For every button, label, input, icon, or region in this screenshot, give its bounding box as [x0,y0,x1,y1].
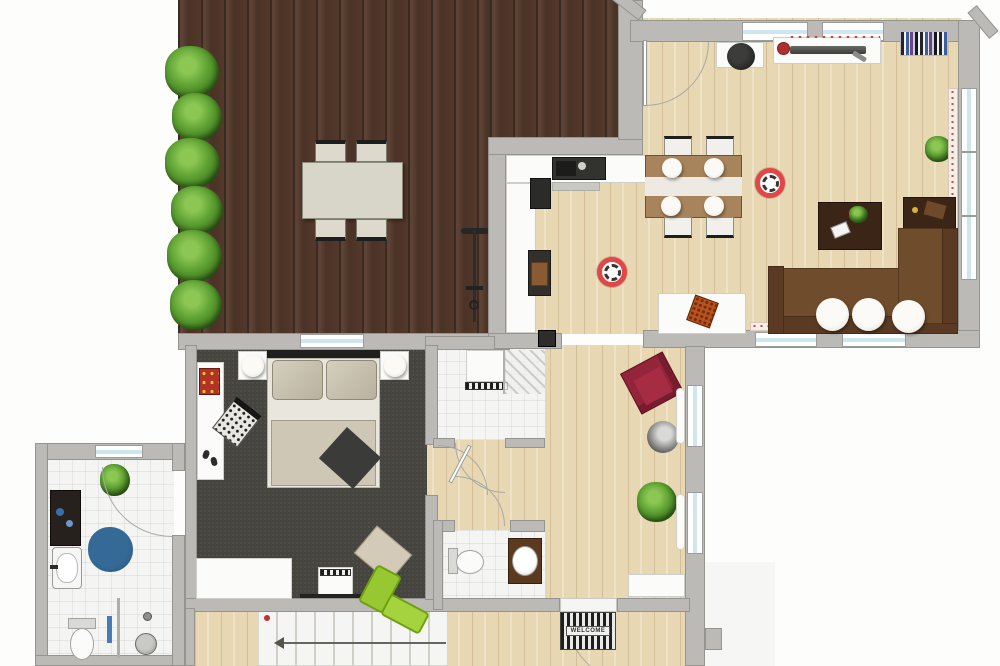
bedside-lamp [384,355,406,377]
shrub-plant [167,230,222,282]
kitchen-west-wall [488,137,506,349]
shrub-plant [171,186,223,234]
sofa-pillow [816,298,849,331]
bathroom-east-wall-lower [172,535,185,666]
welcome-mat-label: WELCOME [566,626,610,636]
living-east-window [961,88,977,152]
stairs-west-wall [185,608,195,666]
hall-plant [637,482,677,522]
bedroom-window [300,334,364,348]
curtain [676,494,685,550]
outdoor-chair [356,219,387,241]
keyboard-keys [320,569,351,576]
bedside-lamp [242,355,264,377]
black-lounge-chair [727,43,755,70]
shrub-plant [172,93,222,141]
wc-toilet-bowl [456,550,484,574]
kitchen-mat [552,182,600,191]
wash-basin-bowl [56,553,78,583]
living-south-window [755,332,817,347]
sofa-pillow [892,300,925,333]
blue-round-rug [88,527,133,572]
living-east-window [961,152,977,216]
exterior-path [705,562,775,666]
shower-room-cabinet [466,350,506,382]
bed-pillow [272,360,323,400]
wc-north-wall2 [510,520,545,532]
bedroom-east-wall-upper [425,345,438,445]
stairs-direction-line [282,642,446,644]
living-east-window [961,216,977,280]
hall-east-window [687,385,703,447]
kitchen-faucet [578,162,586,170]
camera-360-marker[interactable] [755,168,785,198]
deco-garland [788,34,880,40]
camera-360-marker[interactable] [597,257,627,287]
plate [661,196,681,216]
vanity-items [56,508,64,516]
bicycle-wheel [469,300,479,310]
plate [704,158,724,178]
shower-glass-panel [117,598,120,658]
deck-door-leaf [643,40,647,106]
outdoor-chair [315,140,346,162]
cutting-board [531,262,548,286]
shrub-plant [165,138,220,188]
shower-stool [135,633,157,655]
bathroom-west-wall [35,443,48,666]
kitchen-oven [530,178,551,209]
basin-faucet [50,565,58,569]
curtain [676,388,685,444]
bicycle-pedals [466,286,483,290]
shower-room-radiator [465,382,508,390]
sofa-armrest [768,266,784,334]
hallway-floor-strip [195,608,261,666]
camera-360-glyph [762,175,779,192]
living-south-window [842,332,906,347]
bookshelf [900,31,948,56]
stairs-arrow-icon [274,637,284,649]
stairs-start-marker [264,615,270,621]
shower-glass [503,350,545,394]
red-storage-box [199,368,220,395]
kitchen-south-appliance [538,330,556,347]
sofa-pillow [852,298,885,331]
plate [662,158,682,178]
outdoor-table [302,162,403,219]
dining-chair [706,136,734,157]
bedroom-sideboard [196,558,292,599]
toilet-bowl [70,628,94,660]
shrub-plant [165,46,219,98]
plate [704,196,724,216]
shrub-plant [170,280,222,330]
wc-basin [512,546,538,576]
camera-360-glyph [604,264,621,281]
floor-lamp [647,421,679,453]
candle [912,207,918,213]
coffee-table-plant [849,206,868,223]
vanity-items [66,520,73,527]
dining-chair [664,136,692,157]
dining-chair [664,217,692,238]
towel [107,616,112,643]
kitchen-sink-basin [556,161,576,176]
bathroom-south-wall [35,655,185,666]
bath-vanity [50,490,81,546]
entry-door-step [705,628,722,650]
outdoor-chair [356,140,387,162]
shower-head [143,612,152,621]
hall-east-window [687,492,703,554]
table-runner [645,177,742,196]
outdoor-chair [315,219,346,241]
bed-pillow [326,360,377,400]
sofa-back-right [942,228,958,324]
floor-plan: WELCOME [0,0,1000,666]
red-plate [777,42,790,55]
dining-chair [706,217,734,238]
